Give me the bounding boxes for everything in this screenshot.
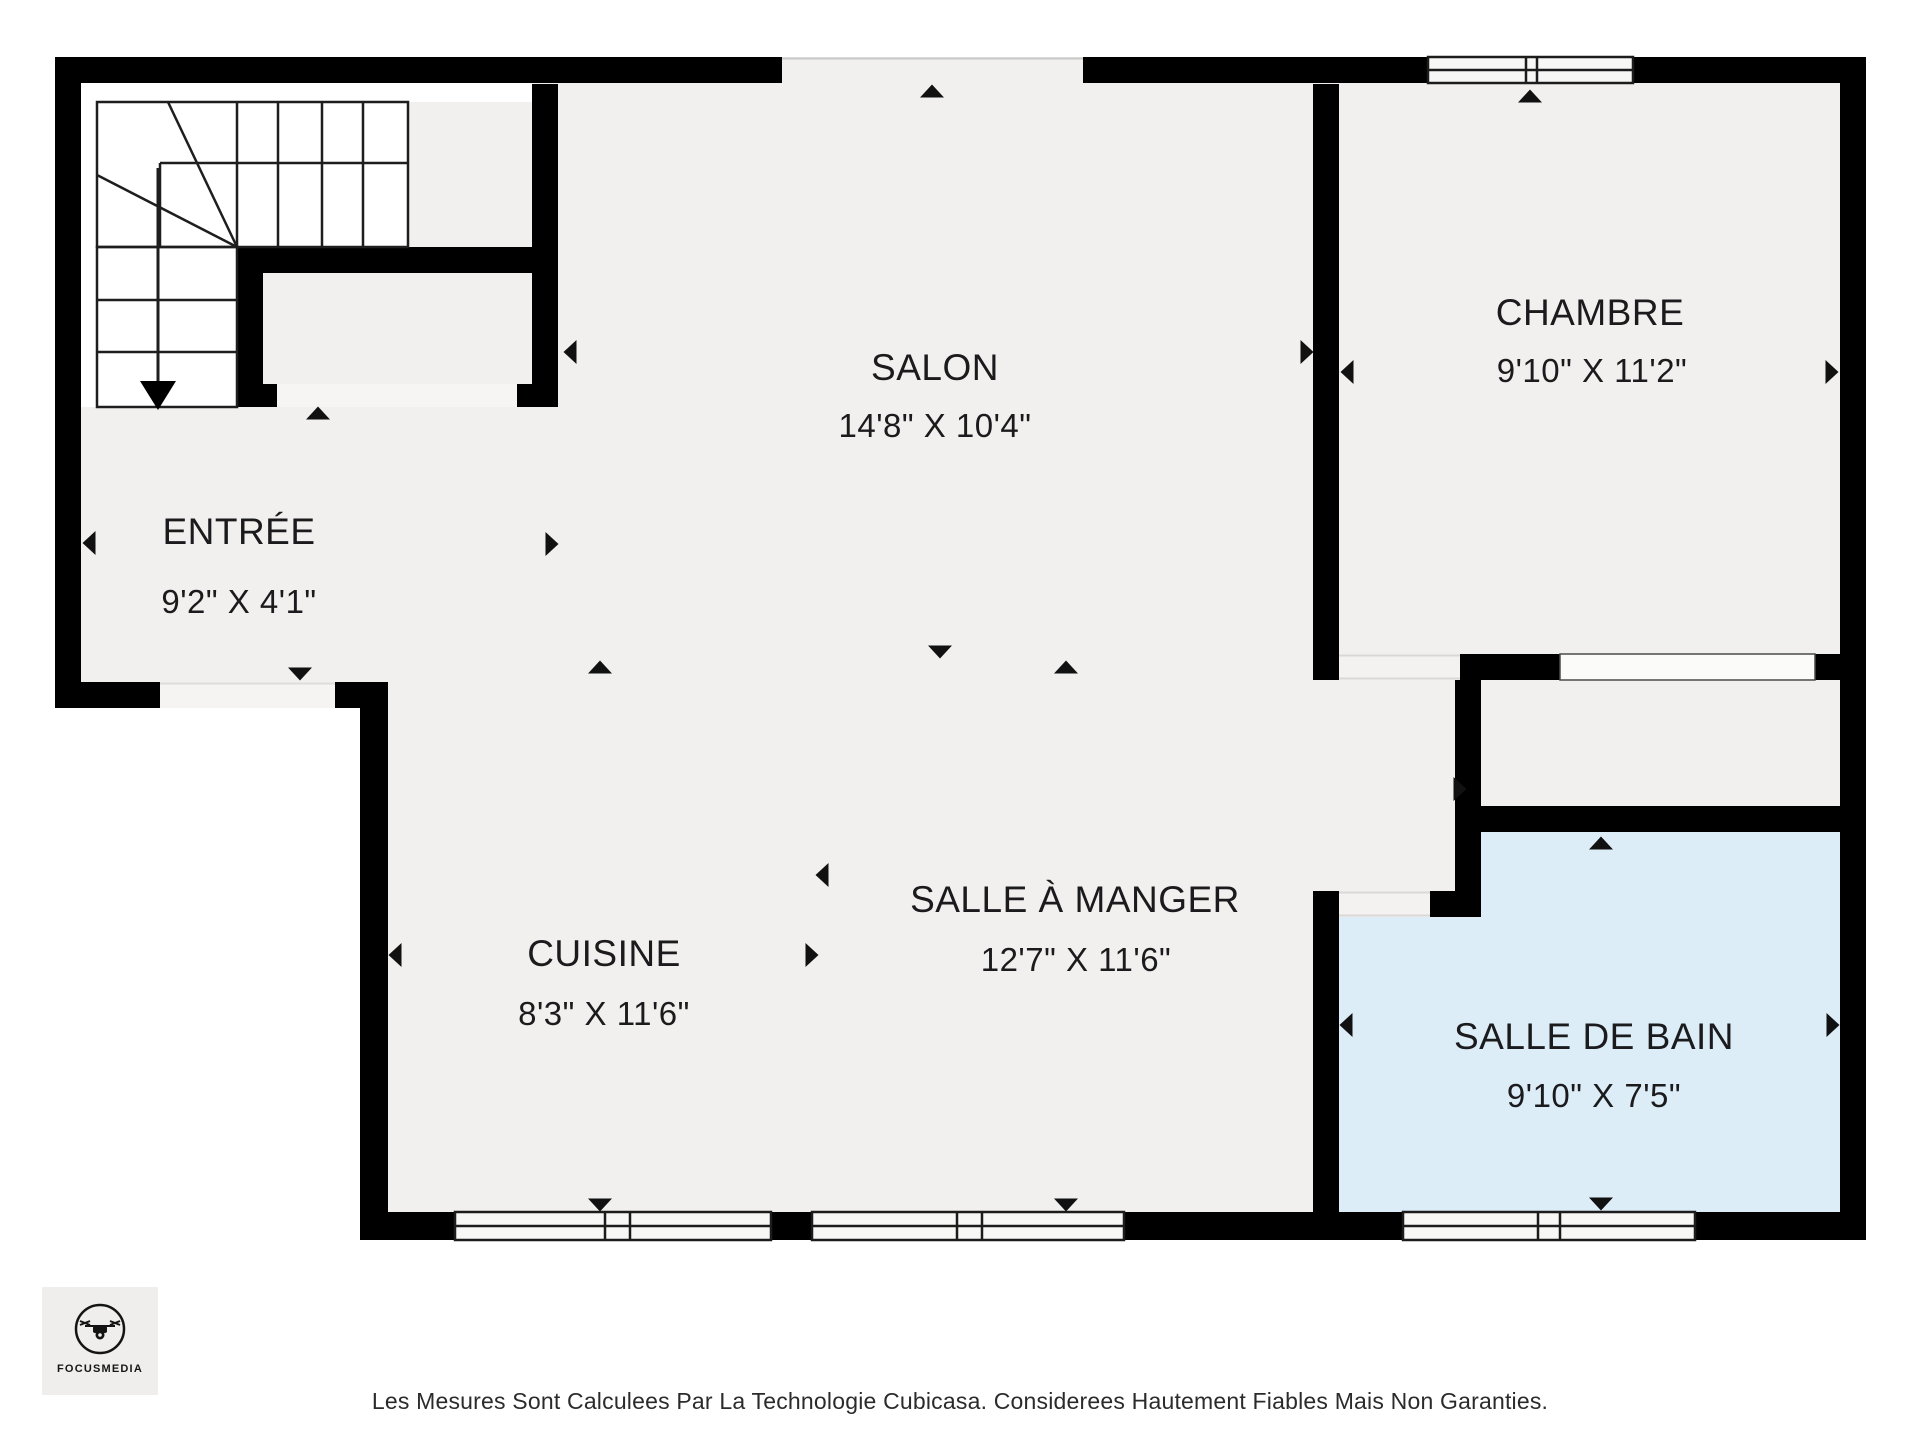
room-dims-entree: 9'2" X 4'1": [161, 583, 316, 620]
floorplan-page: SALON 14'8" X 10'4" CHAMBRE 9'10" X 11'2…: [0, 0, 1920, 1440]
room-dims-salon: 14'8" X 10'4": [839, 407, 1032, 444]
room-dims-salle-a-manger: 12'7" X 11'6": [981, 941, 1172, 978]
room-label-salon: SALON: [871, 347, 999, 388]
opening-bath-door: [1339, 891, 1430, 917]
logo-background: [42, 1287, 158, 1395]
opening-salon-top: [782, 57, 1083, 83]
opening-chambre-door: [1339, 654, 1460, 680]
wall-entree-bottom-a: [55, 682, 160, 708]
room-dims-salle-de-bain: 9'10" X 7'5": [1507, 1077, 1681, 1114]
window-salle-de-bain: [1403, 1212, 1695, 1240]
window-chambre: [1428, 57, 1633, 83]
opening-closet: [277, 384, 517, 407]
room-label-salle-de-bain: SALLE DE BAIN: [1454, 1016, 1734, 1057]
wall-chambre-bottom-b: [1815, 654, 1840, 680]
room-dims-chambre: 9'10" X 11'2": [1497, 352, 1688, 389]
wall-stair-salon: [532, 84, 558, 407]
footer-disclaimer: Les Mesures Sont Calculees Par La Techno…: [372, 1388, 1548, 1414]
wall-closet-left: [237, 247, 263, 407]
closet-floor: [263, 273, 532, 384]
wall-top-right: [1633, 57, 1866, 83]
room-label-cuisine: CUISINE: [527, 933, 681, 974]
logo-brand-text: FOCUSMEDIA: [57, 1363, 143, 1375]
wall-under-stairs: [237, 247, 558, 273]
room-label-salle-a-manger: SALLE À MANGER: [910, 879, 1240, 920]
room-label-chambre: CHAMBRE: [1496, 292, 1685, 333]
wall-cuisine-left: [360, 682, 388, 1240]
wall-top-left: [55, 57, 782, 83]
window-cuisine: [455, 1212, 771, 1240]
logo: FOCUSMEDIA: [42, 1287, 158, 1395]
room-dims-cuisine: 8'3" X 11'6": [518, 995, 690, 1032]
window-salle-a-manger: [812, 1212, 1124, 1240]
wall-bath-top: [1455, 806, 1840, 832]
wall-right: [1840, 57, 1866, 1240]
wall-closet-left-foot: [237, 384, 277, 407]
stair-landing: [408, 102, 532, 247]
opening-front-door: [160, 682, 335, 708]
wall-bath-left: [1313, 891, 1339, 1212]
room-label-entree: ENTRÉE: [162, 511, 315, 552]
floorplan-canvas: SALON 14'8" X 10'4" CHAMBRE 9'10" X 11'2…: [0, 0, 1920, 1440]
wall-top-mid: [1083, 57, 1428, 83]
closet-band-chambre: [1560, 654, 1815, 680]
wall-left: [55, 57, 81, 708]
wall-salon-right: [1313, 84, 1339, 680]
wall-bath-door-stub: [1430, 891, 1481, 917]
